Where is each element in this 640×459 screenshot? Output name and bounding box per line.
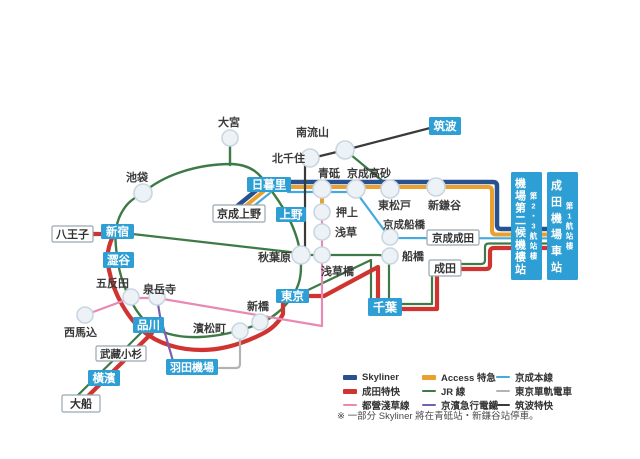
station-box-yokohama: 橫濱	[88, 370, 120, 386]
terminal-sub-char: 航	[566, 221, 574, 231]
station-circle-ikebukuro	[134, 184, 152, 202]
station-box-label: 橫濱	[93, 371, 116, 385]
legend-swatch-monorail	[496, 390, 510, 393]
legend-swatch-keikyu	[422, 404, 436, 407]
terminal-main-char: 田	[551, 195, 562, 208]
terminal-main-char: 機	[515, 176, 526, 190]
asakusa-label: 浅草	[335, 225, 357, 239]
terminal-sub-char: 第	[530, 191, 538, 201]
station-circle-omiya	[222, 130, 238, 146]
legend-swatch-nex	[343, 389, 357, 394]
station-box-label: 八王子	[55, 228, 89, 241]
legend: Skyliner成田特快都營淺草線Access 特急JR 線京濱急行電鐵京成本線…	[343, 370, 572, 412]
station-box-keisei-narita: 京成成田	[427, 230, 479, 245]
station-box-narita: 成田	[429, 260, 461, 276]
terminal-sub-char: 樓	[530, 251, 538, 261]
station-box-nippori: 日暮里	[247, 177, 291, 192]
station-box-label: 澀谷	[107, 253, 130, 267]
line-jr-chiba-narita	[402, 277, 432, 304]
station-box-shibuya: 澀谷	[103, 252, 134, 268]
legend-swatch-asakusa	[343, 404, 357, 407]
station-circle-hamamatsucho	[232, 323, 248, 339]
hamamatsucho-label: 濱松町	[193, 321, 226, 335]
station-circle-shimbashi	[252, 314, 268, 330]
sengakuji-label: 泉岳寺	[142, 282, 176, 296]
station-box-label: 京成成田	[432, 231, 474, 244]
station-box-label: 品川	[137, 318, 160, 332]
terminal-main-char: 機	[551, 211, 562, 225]
line-nex-ofuna-branch	[80, 333, 152, 404]
station-box-ueno: 上野	[276, 207, 306, 222]
legend-swatch-skyliner	[343, 375, 357, 380]
terminal-sub-char: 樓	[566, 241, 574, 251]
akihabara-label: 秋葉原	[258, 250, 291, 264]
terminal-main-char: 車	[551, 243, 562, 257]
station-box-shinagawa: 品川	[133, 317, 164, 333]
station-box-musashi-kosugi: 武藏小杉	[96, 346, 146, 361]
shimbashi-label: 新橋	[247, 299, 270, 313]
station-circle-funabashi	[382, 248, 398, 264]
station-box-label: 筑波	[434, 119, 457, 133]
legend-swatch-keisei	[496, 376, 510, 379]
omiya-label: 大宮	[218, 115, 240, 129]
terminal-box-narita-airport-station: 成田機場車站第1航站樓	[547, 172, 578, 280]
kita-senju-label: 北千住	[272, 151, 305, 165]
legend-item-access: Access 特急	[422, 370, 496, 384]
station-circle-higashi-matsudo	[381, 180, 399, 198]
legend-label-access: Access 特急	[441, 370, 496, 384]
terminal-main-char: 成	[551, 178, 562, 192]
terminal-sub-char: 站	[566, 231, 574, 241]
terminal-sub-char: 站	[530, 241, 538, 251]
station-circle-minami-nagareyama	[336, 141, 354, 159]
station-box-label: 京成上野	[217, 206, 261, 220]
station-box-haneda-airport: 羽田機場	[166, 359, 218, 375]
oshiage-label: 押上	[336, 205, 358, 219]
legend-swatch-tsukuba	[496, 404, 510, 407]
legend-footnote: ※ 一部分 Skyliner 將在青砥站・新鎌谷站停車。	[337, 408, 539, 422]
station-circle-aoto	[313, 180, 331, 198]
funabashi-label: 船橋	[402, 249, 425, 263]
legend-item-nex: 成田特快	[343, 384, 422, 398]
higashi-matsudo-label: 東松戸	[378, 198, 411, 212]
terminal-main-char: 場	[551, 227, 562, 241]
terminal-sub-char: 2	[531, 202, 535, 211]
terminal-main-char: 候	[515, 225, 527, 239]
terminal-sub-char: 1	[567, 212, 571, 221]
station-circle-asakusabashi	[314, 247, 330, 263]
station-circle-shin-kamagaya	[427, 178, 445, 196]
terminal-main-char: 機	[515, 237, 526, 251]
tokyo-narita-transit-map: 日暮里上野新宿澀谷品川東京千葉筑波羽田機場橫濱八王子京成上野武藏小杉大船京成成田…	[0, 0, 640, 459]
terminal-main-char: 樓	[515, 250, 526, 264]
station-box-tokyo: 東京	[276, 289, 309, 303]
station-box-label: 千葉	[373, 299, 398, 314]
gotanda-label: 五反田	[96, 276, 129, 290]
terminal-sub-char: 3	[531, 222, 535, 231]
legend-item-skyliner: Skyliner	[343, 370, 422, 384]
station-box-label: 武藏小杉	[100, 347, 142, 360]
shin-kamagaya-label: 新鎌谷	[428, 198, 462, 212]
station-circle-nishi-magome	[77, 307, 93, 323]
legend-swatch-jr	[422, 390, 436, 393]
legend-swatch-access	[422, 375, 436, 380]
asakusabashi-label: 浅草橋	[321, 264, 355, 278]
aoto-label: 青砥	[318, 166, 340, 180]
station-circle-akihabara	[292, 246, 310, 264]
station-circle-keisei-takasago	[347, 180, 365, 198]
keisei-funabashi-label: 京成船橋	[383, 218, 425, 231]
legend-label-nex: 成田特快	[362, 384, 400, 398]
legend-label-monorail: 東京單軌電車	[515, 384, 572, 398]
legend-label-jr: JR 線	[441, 384, 465, 398]
keisei-takasago-label: 京成高砂	[347, 166, 391, 180]
legend-item-keisei: 京成本線	[496, 370, 572, 384]
station-circle-asakusa	[314, 224, 330, 240]
terminal-main-char: 場	[515, 188, 526, 202]
station-box-hachioji: 八王子	[52, 226, 93, 242]
line-nex-west	[92, 234, 283, 350]
legend-item-monorail: 東京單軌電車	[496, 384, 572, 398]
terminal-main-char: 站	[551, 260, 562, 274]
line-jr-chuo-line	[115, 232, 299, 253]
ikebukuro-label: 池袋	[126, 170, 149, 184]
legend-label-skyliner: Skyliner	[362, 372, 399, 383]
station-box-label: 新宿	[106, 225, 129, 239]
station-box-label: 東京	[281, 289, 304, 303]
station-circle-oshiage	[314, 204, 330, 220]
station-box-ofuna: 大船	[62, 395, 100, 412]
station-box-label: 羽田機場	[170, 360, 214, 374]
terminal-sub-char: 第	[566, 201, 574, 211]
station-box-tsukuba: 筑波	[429, 117, 461, 135]
station-box-label: 大船	[70, 396, 92, 410]
station-box-shinjuku: 新宿	[101, 224, 134, 239]
terminal-sub-char: ・	[530, 212, 538, 221]
station-circle-gotanda	[123, 289, 139, 305]
terminal-box-airport-terminal2-station: 機場第二候機樓站第2・3航站樓	[511, 172, 542, 280]
station-box-label: 日暮里	[252, 178, 287, 192]
nishi-magome-label: 西馬込	[64, 325, 97, 339]
station-circle-keisei-funabashi	[382, 229, 398, 245]
station-box-label: 成田	[434, 261, 456, 275]
station-box-keisei-ueno: 京成上野	[213, 205, 265, 222]
station-box-chiba: 千葉	[368, 298, 402, 316]
terminal-main-char: 二	[515, 215, 526, 227]
terminal-sub-char: 航	[530, 231, 538, 241]
terminal-main-char: 第	[515, 201, 526, 215]
station-box-label: 上野	[280, 208, 303, 222]
terminal-main-char: 站	[515, 262, 526, 276]
legend-item-jr: JR 線	[422, 384, 496, 398]
legend-label-keisei: 京成本線	[515, 370, 553, 384]
minami-nagareyama-label: 南流山	[296, 125, 329, 139]
